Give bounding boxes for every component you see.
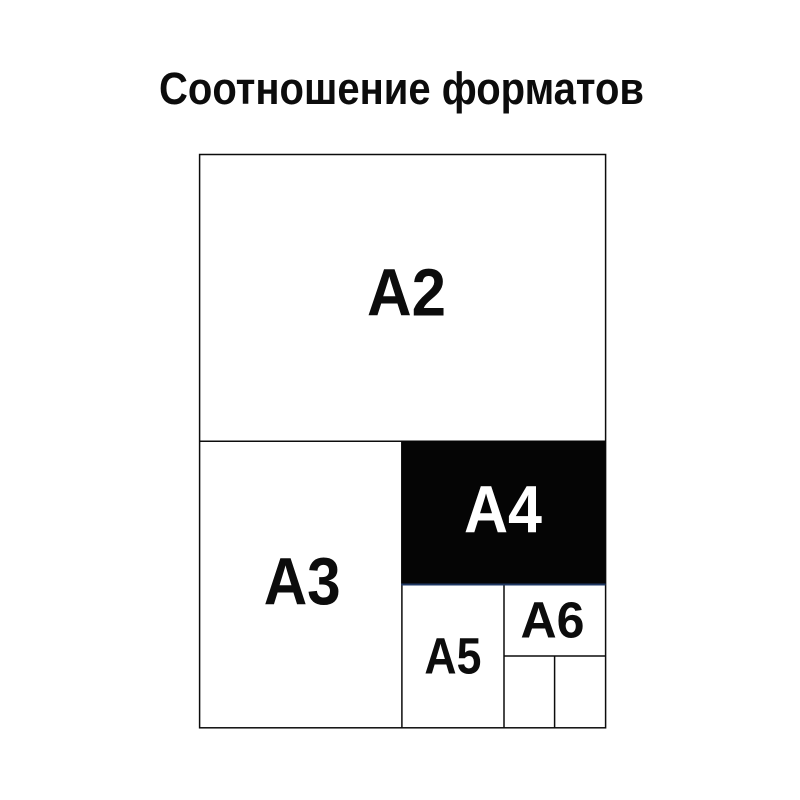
svg-text:A4: A4 xyxy=(464,473,542,548)
svg-text:A3: A3 xyxy=(264,545,341,620)
svg-text:A6: A6 xyxy=(521,592,585,649)
svg-text:Соотношение форматов: Соотношение форматов xyxy=(159,63,644,114)
svg-text:A2: A2 xyxy=(367,255,446,330)
svg-text:A5: A5 xyxy=(424,628,481,685)
